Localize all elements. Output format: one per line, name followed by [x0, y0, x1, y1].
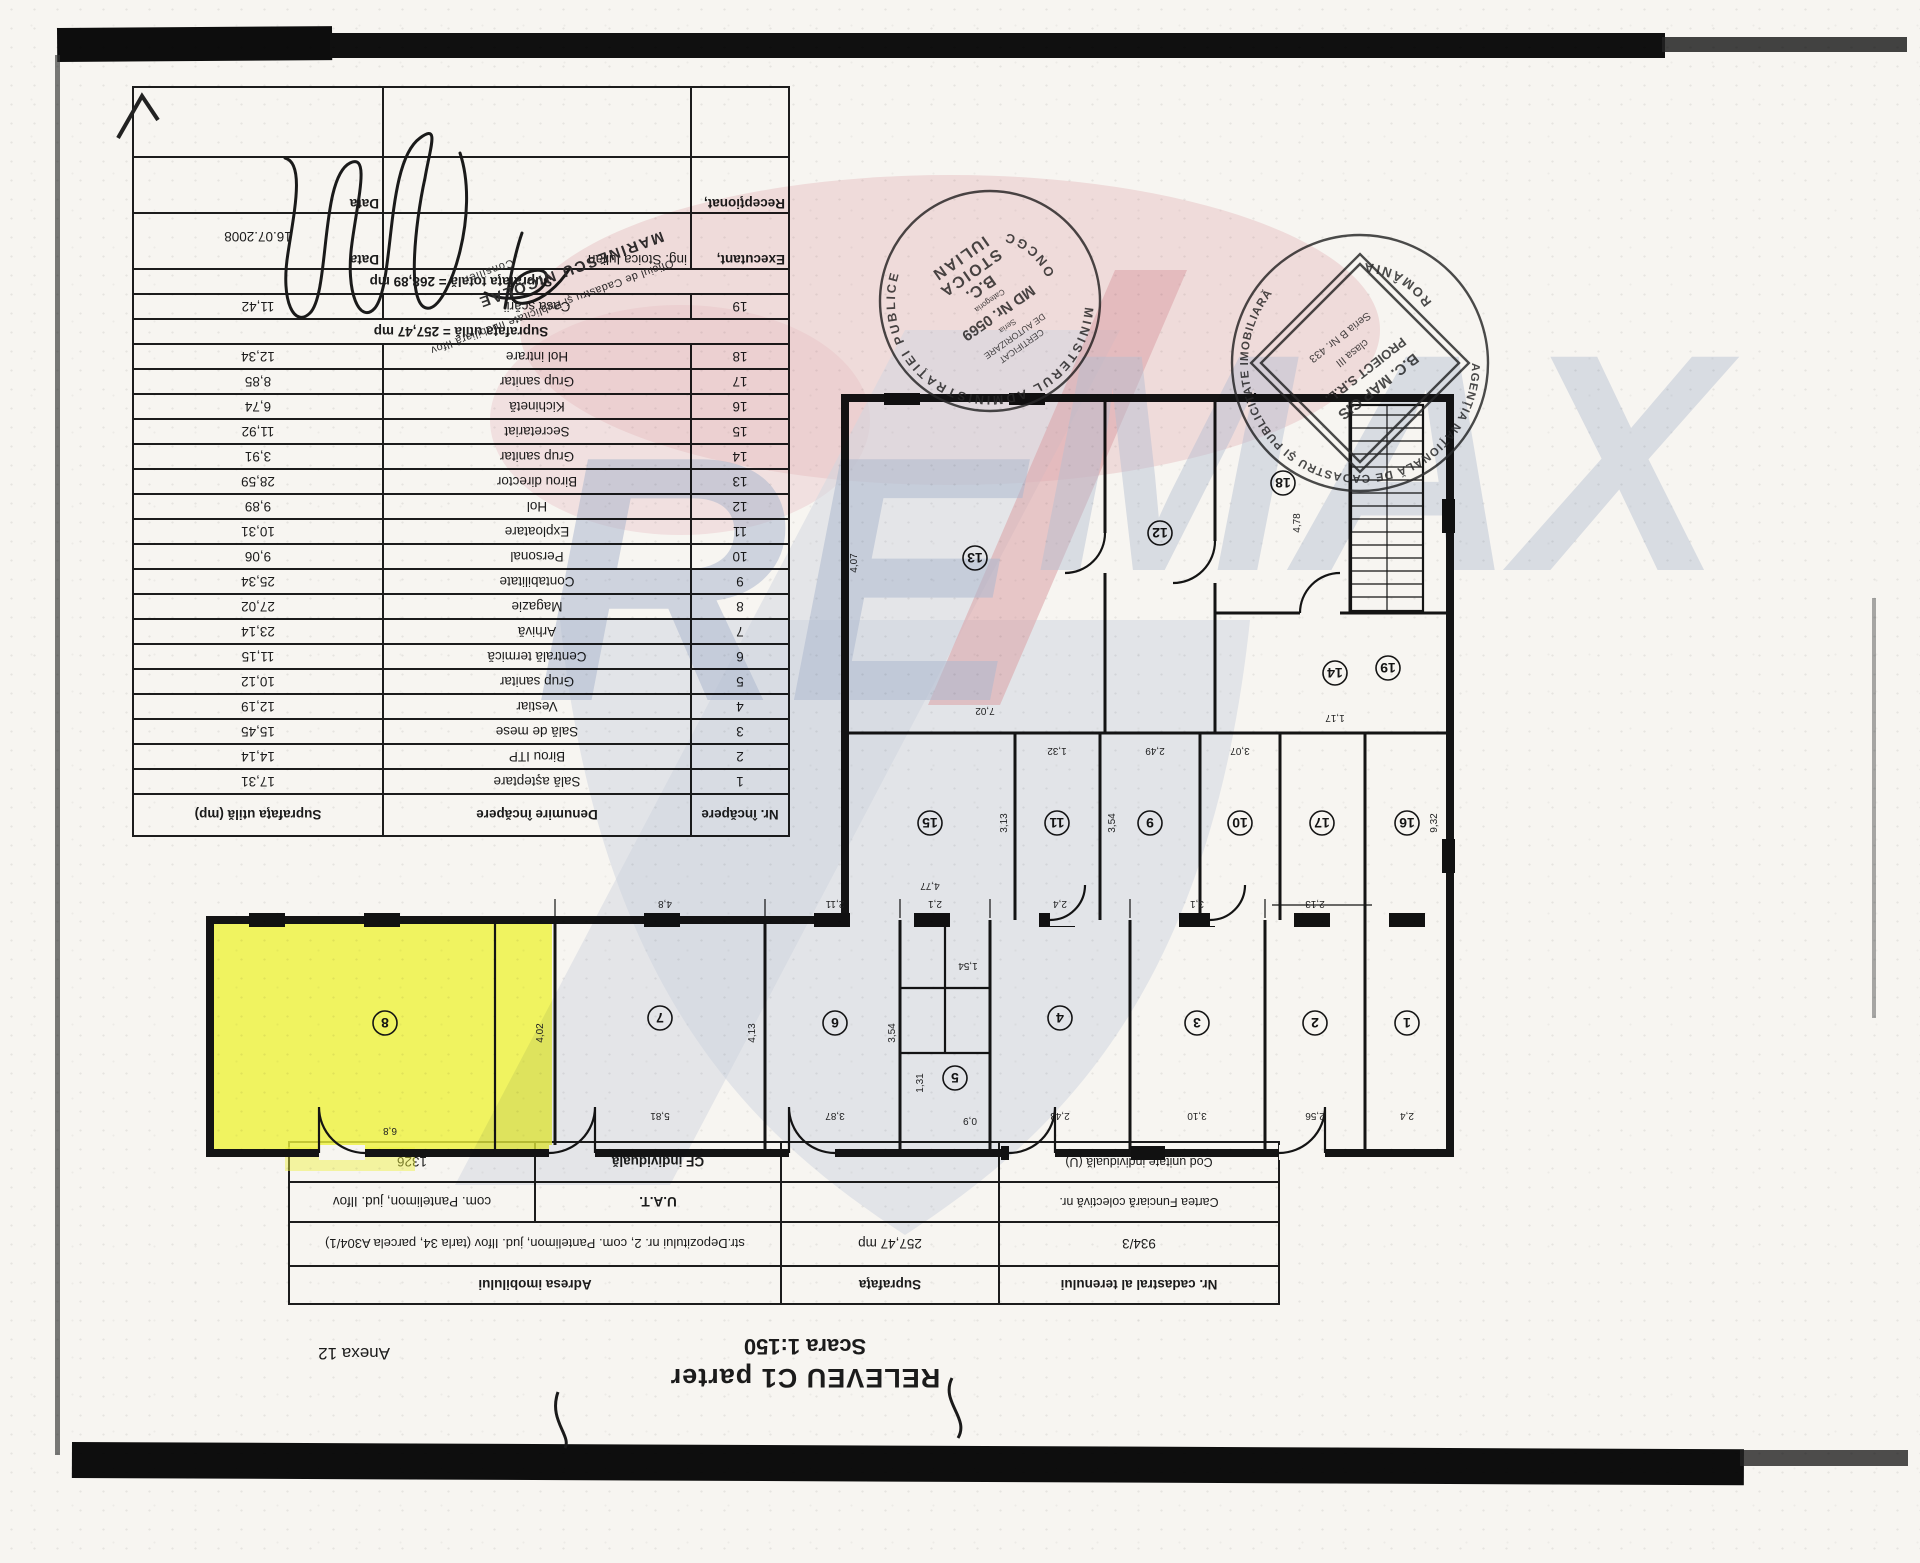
room-table-cell: 27,02	[133, 594, 383, 619]
table-row: 14Grup sanitar3,91	[133, 444, 789, 469]
room-table-cell: 3	[691, 719, 789, 744]
stamps-layer: MINISTERUL ADMINISTRAŢIEI PUBLICE ONCGC …	[720, 123, 1540, 543]
table-row: 6Centrală termică11,15	[133, 644, 789, 669]
room-table-cell: 4	[691, 694, 789, 719]
table-row: 4Vestiar12,19	[133, 694, 789, 719]
room-number-text: 2	[1311, 1015, 1319, 1031]
room-number-16: 16	[1395, 811, 1419, 835]
dimension-label: 2,13	[1305, 898, 1325, 909]
room-number-text: 15	[922, 815, 938, 831]
info-col2-header: Suprafaţa	[781, 1266, 999, 1304]
room-number-text: 1	[1403, 1015, 1411, 1031]
dimension-label: 3,07	[1230, 745, 1250, 756]
room-number-text: 16	[1399, 815, 1415, 831]
svg-text:ONCGC: ONCGC	[1000, 229, 1058, 279]
stamp-ministry: MINISTERUL ADMINISTRAŢIEI PUBLICE ONCGC …	[880, 191, 1100, 411]
room-number-14: 14	[1323, 661, 1347, 685]
room-number-text: 9	[1146, 815, 1154, 831]
room-number-text: 4	[1056, 1010, 1064, 1026]
dimension-label: 3,13	[999, 813, 1010, 833]
room-number-4: 4	[1048, 1006, 1072, 1030]
page-scale: Scara 1:150	[605, 1333, 1005, 1359]
room-number-text: 17	[1314, 815, 1330, 831]
dimension-label: 7,02	[975, 705, 995, 716]
room-table-cell: Personal	[383, 544, 691, 569]
room-number-1: 1	[1395, 1011, 1419, 1035]
highlighted-room-8	[214, 922, 552, 1151]
dimension-label: 2,4	[1400, 1110, 1414, 1121]
room-table-cell: Vestiar	[383, 694, 691, 719]
room-table-cell: Grup sanitar	[383, 669, 691, 694]
table-row: 11Exploatare10,31	[133, 519, 789, 544]
dimension-label: 1,31	[915, 1073, 926, 1093]
room-table-cell: 17,31	[133, 769, 383, 794]
dimension-label: 1,17	[1325, 712, 1345, 723]
dimension-label: 3,10	[1187, 1110, 1207, 1121]
room-table-header-nr: Nr. încăpere	[691, 794, 789, 836]
room-table-cell: Sală aşteptare	[383, 769, 691, 794]
surface-value: 257,47 mp	[781, 1222, 999, 1266]
page-title: RELEVEU C1 parter	[605, 1362, 1005, 1393]
dimension-label: 0,9	[963, 1115, 977, 1126]
room-table-cell: 28,59	[133, 469, 383, 494]
dimension-label: 4,13	[747, 1023, 758, 1043]
dimension-label: 6,8	[383, 1125, 397, 1136]
room-table-cell: Exploatare	[383, 519, 691, 544]
room-table-cell: Birou director	[383, 469, 691, 494]
table-row: 3Sală de mese15,45	[133, 719, 789, 744]
room-table-header-name: Denumire încăpere	[383, 794, 691, 836]
dimension-label: 3,87	[825, 1110, 845, 1121]
room-table-cell: 9	[691, 569, 789, 594]
table-row: 1Sală aşteptare17,31	[133, 769, 789, 794]
room-table-cell: 9,89	[133, 494, 383, 519]
dimension-label: 4,8	[658, 898, 672, 909]
scanned-document-page: RELEVEU C1 parter Scara 1:150 Anexa 12 N…	[0, 0, 1920, 1563]
room-table-cell: 2	[691, 744, 789, 769]
room-number-text: 11	[1049, 815, 1064, 831]
room-table-cell: Contabilitate	[383, 569, 691, 594]
empty-cell	[781, 1182, 999, 1222]
room-number-10: 10	[1228, 811, 1252, 835]
room-number-text: 6	[831, 1015, 839, 1031]
uat-label: U.A.T.	[535, 1182, 781, 1222]
room-table-cell: 7	[691, 619, 789, 644]
annex-label: Anexa 12	[270, 1343, 390, 1363]
room-number-7: 7	[648, 1006, 672, 1030]
room-table-cell: 23,14	[133, 619, 383, 644]
room-number-13: 13	[963, 546, 987, 570]
partition-walls-top	[555, 920, 1365, 1153]
room-table-cell: 10	[691, 544, 789, 569]
room-table-cell: 15,45	[133, 719, 383, 744]
dimension-label: 2,4	[1053, 898, 1067, 909]
room-table-cell: Birou ITP	[383, 744, 691, 769]
room-table-cell: Arhivă	[383, 619, 691, 644]
partition-walls-minor	[495, 920, 990, 1153]
dimension-label: 5,81	[650, 1110, 670, 1121]
info-col1-header: Nr. cadastral al terenului	[999, 1266, 1279, 1304]
table-row: 13Birou director28,59	[133, 469, 789, 494]
room-table-cell: 3,91	[133, 444, 383, 469]
room-table-cell: 11,15	[133, 644, 383, 669]
room-number-text: 5	[951, 1070, 959, 1086]
room-table-header-area: Suprafaţa utilă (mp)	[133, 794, 383, 836]
room-table-cell: 25,34	[133, 569, 383, 594]
room-table-cell: Secretariat	[383, 419, 691, 444]
room-table-cell: 9,06	[133, 544, 383, 569]
room-number-6: 6	[823, 1011, 847, 1035]
room-table-cell: Grup sanitar	[383, 369, 691, 394]
stamp1-bottom-text: ONCGC	[1000, 229, 1058, 279]
stamp-ancpi: AGENŢIA NAŢIONALĂ DE CADASTRU ŞI PUBLICI…	[1232, 235, 1488, 491]
room-number-text: 3	[1193, 1015, 1201, 1031]
room-table-cell: Grup sanitar	[383, 444, 691, 469]
room-number-text: 10	[1232, 815, 1248, 831]
dimension-label: 2,11	[825, 898, 844, 909]
room-number-11: 11	[1045, 811, 1069, 835]
room-number-15: 15	[918, 811, 942, 835]
room-number-3: 3	[1185, 1011, 1209, 1035]
room-table-cell: Magazie	[383, 594, 691, 619]
dimension-label: 4,02	[535, 1023, 546, 1043]
land-book-label: Cartea Funciară colectivă nr.	[999, 1182, 1279, 1222]
room-table-cell: Hol	[383, 494, 691, 519]
room-table-cell: Centrală termică	[383, 644, 691, 669]
dimension-label: 3,54	[1107, 813, 1118, 833]
room-number-text: 14	[1327, 665, 1343, 681]
dimension-label: 2,43	[1050, 1110, 1070, 1121]
document-rotated-content: RELEVEU C1 parter Scara 1:150 Anexa 12 N…	[0, 0, 1920, 1563]
room-number-text: 7	[656, 1010, 664, 1026]
room-table-cell: Sală de mese	[383, 719, 691, 744]
room-table-cell: 5	[691, 669, 789, 694]
table-row: 2Birou ITP14,14	[133, 744, 789, 769]
dimension-label: 2,49	[1145, 745, 1165, 756]
dimension-label: 2,1	[928, 898, 942, 909]
dimension-label: 1,54	[958, 960, 978, 971]
room-table-cell: 10,12	[133, 669, 383, 694]
room-table-cell: 11,92	[133, 419, 383, 444]
room-number-5: 5	[943, 1066, 967, 1090]
dimension-label: 4,77	[920, 880, 940, 891]
room-table-cell: 14,14	[133, 744, 383, 769]
table-row: 15Secretariat11,92	[133, 419, 789, 444]
dimension-label: 3,1	[1190, 898, 1204, 909]
room-number-17: 17	[1310, 811, 1334, 835]
dimension-label: 2,56	[1305, 1110, 1325, 1121]
table-row: 7Arhivă23,14	[133, 619, 789, 644]
table-row: 5Grup sanitar10,12	[133, 669, 789, 694]
room-table-cell: 6	[691, 644, 789, 669]
table-row: 8Magazie27,02	[133, 594, 789, 619]
table-row: 12Hol9,89	[133, 494, 789, 519]
dimension-label: 3,54	[887, 1023, 898, 1043]
room-number-text: 8	[381, 1015, 389, 1031]
room-table-cell: 12,19	[133, 694, 383, 719]
room-table-cell: 10,31	[133, 519, 383, 544]
room-number-text: 19	[1380, 660, 1396, 676]
room-table-cell: 1	[691, 769, 789, 794]
dimension-label: 4,07	[849, 553, 860, 573]
room-number-9: 9	[1138, 811, 1162, 835]
dimension-label: 1,32	[1047, 745, 1067, 756]
room-number-19: 19	[1376, 656, 1400, 680]
uat-value: com. Pantelimon, jud. Ilfov	[289, 1182, 535, 1222]
table-row: 10Personal9,06	[133, 544, 789, 569]
address-value: str.Depozitului nr. 2, com. Pantelimon, …	[289, 1222, 781, 1266]
room-number-2: 2	[1303, 1011, 1327, 1035]
room-table-cell: 8	[691, 594, 789, 619]
table-row: 9Contabilitate25,34	[133, 569, 789, 594]
dimension-label: 9,32	[1429, 813, 1440, 833]
cadastral-number: 934/3	[999, 1222, 1279, 1266]
table-row: 16Kichinetă6,74	[133, 394, 789, 419]
info-col3-header: Adresa imobilului	[289, 1266, 781, 1304]
room-table-cell: Kichinetă	[383, 394, 691, 419]
room-number-text: 13	[967, 550, 983, 566]
